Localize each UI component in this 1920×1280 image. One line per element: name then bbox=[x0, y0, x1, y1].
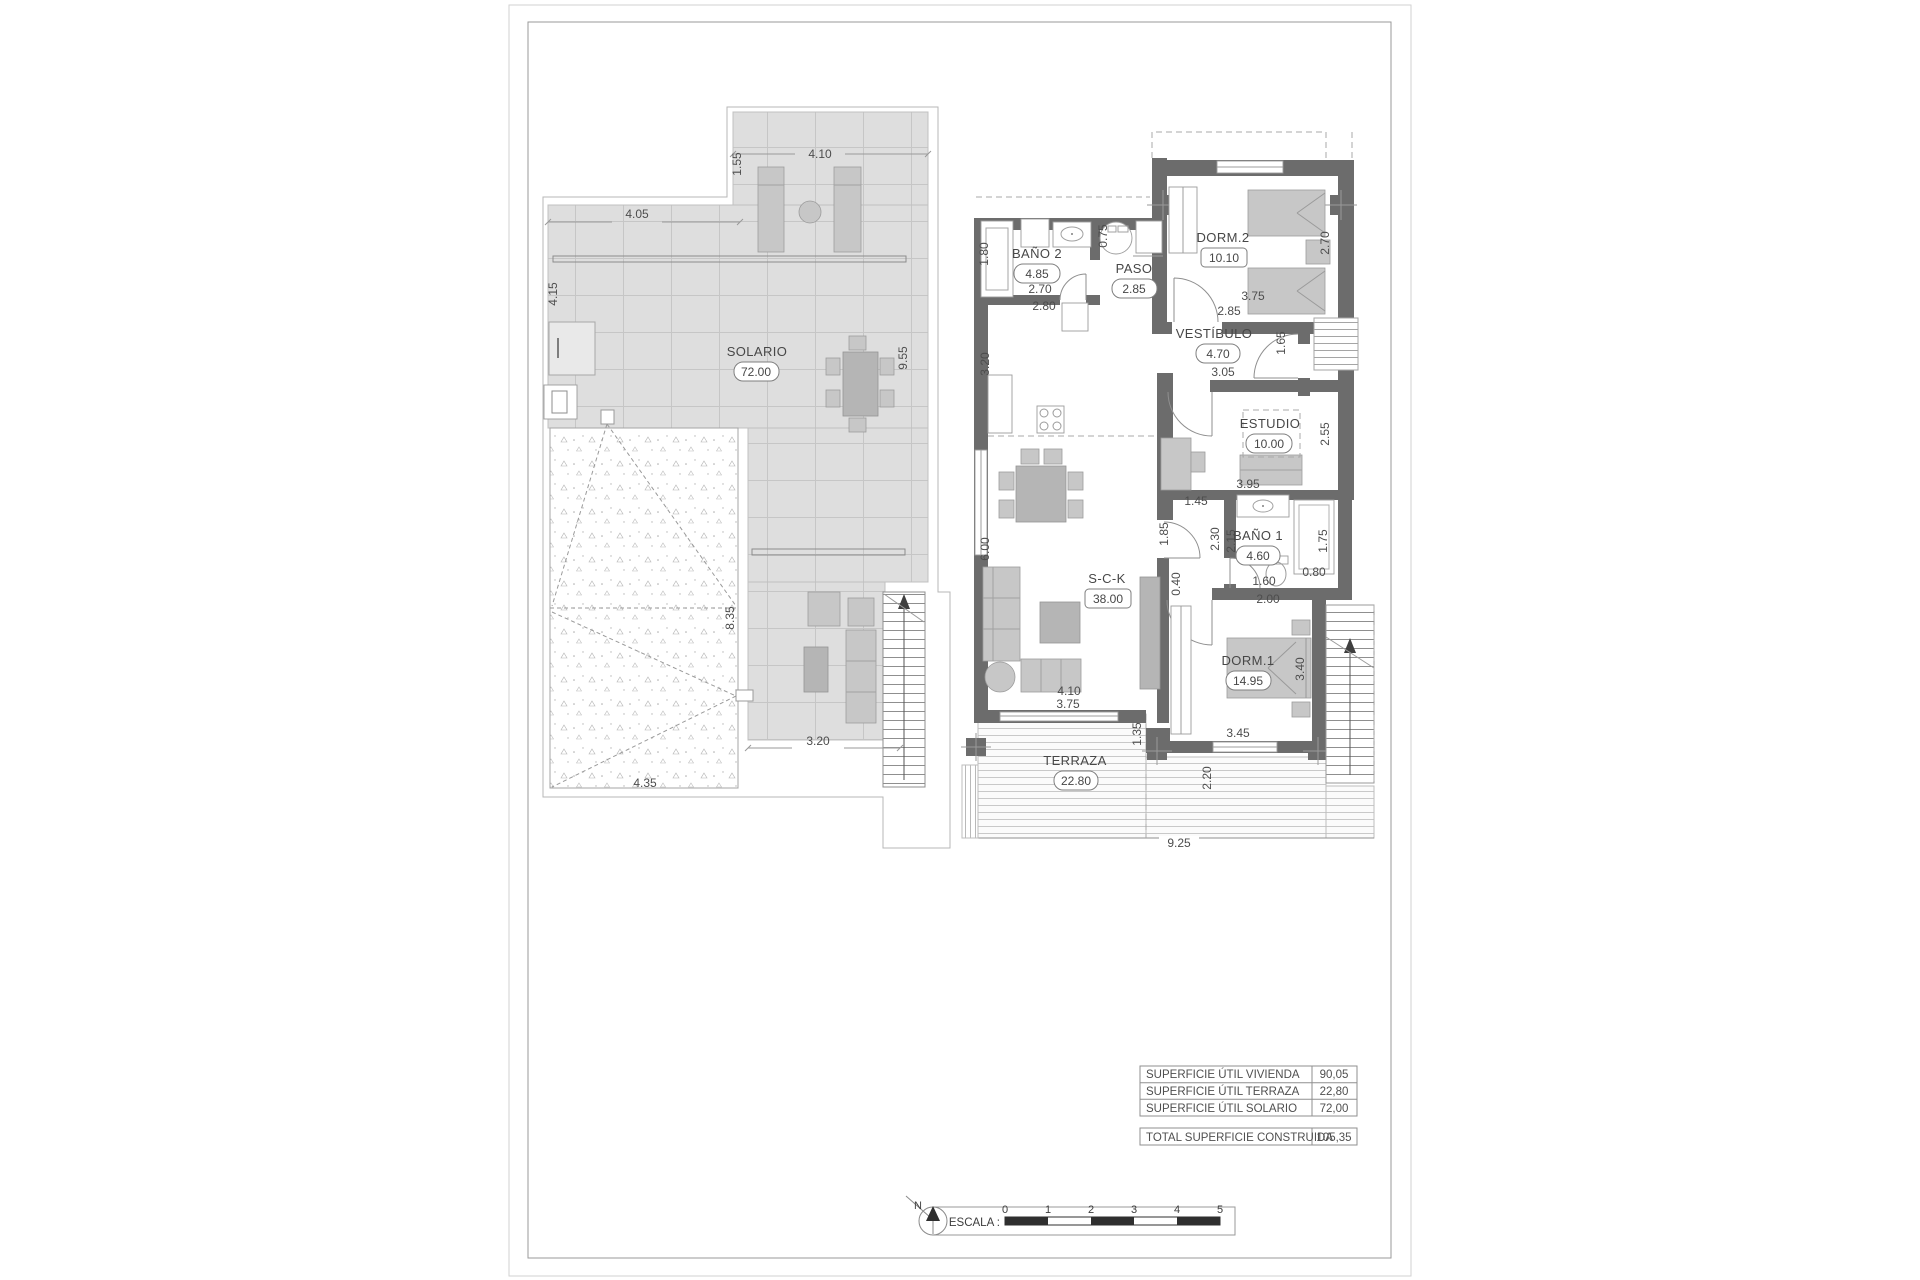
table-row-value: 22,80 bbox=[1320, 1086, 1349, 1098]
side-stairs bbox=[1326, 605, 1374, 783]
room-label-solario: SOLARIO bbox=[727, 344, 788, 359]
dim-terraza-left-w: 3.75 bbox=[1056, 697, 1080, 711]
area-paso: 2.85 bbox=[1122, 282, 1146, 296]
entry-stairs bbox=[1314, 318, 1358, 370]
area-vestibulo: 4.70 bbox=[1206, 347, 1230, 361]
dim-solario-top-height: 1.55 bbox=[730, 152, 744, 176]
chimney bbox=[544, 385, 577, 419]
dim-kitchen-height: 3.20 bbox=[978, 352, 992, 376]
dim-solario-top: 4.10 bbox=[808, 147, 832, 161]
dim-bano1-w1: 1.60 bbox=[1252, 574, 1276, 588]
dim-bano1-height: 1.75 bbox=[1316, 529, 1330, 553]
dim-dorm2-right: 2.70 bbox=[1318, 231, 1332, 255]
room-label-bano1: BAÑO 1 bbox=[1233, 528, 1283, 543]
scale-tick: 0 bbox=[1002, 1204, 1008, 1216]
area-bano1: 4.60 bbox=[1246, 549, 1270, 563]
room-label-paso: PASO bbox=[1116, 261, 1153, 276]
room-label-vestibulo: VESTÍBULO bbox=[1176, 326, 1253, 341]
solario-stairs bbox=[883, 592, 925, 787]
table-row-label: SUPERFICIE ÚTIL TERRAZA bbox=[1146, 1085, 1300, 1098]
dim-terraza-step: 1.35 bbox=[1130, 722, 1144, 746]
dim-solario-upper-width: 4.05 bbox=[625, 207, 649, 221]
stove bbox=[1037, 406, 1064, 433]
dorm1-furniture bbox=[1171, 606, 1311, 734]
dim-solario-left-height: 4.15 bbox=[546, 282, 560, 306]
north-label: N bbox=[914, 1200, 922, 1212]
main-floor-plan: 1.80 2.70 2.80 3.20 0.75 3.75 2.85 2.70 … bbox=[961, 132, 1374, 850]
skylight bbox=[549, 322, 595, 375]
dim-dorm2-bottom2: 2.85 bbox=[1217, 304, 1241, 318]
area-sck: 38.00 bbox=[1093, 592, 1123, 606]
dim-sck-width: 4.10 bbox=[1057, 684, 1081, 698]
dim-solario-right-height: 9.55 bbox=[896, 346, 910, 370]
area-bano2: 4.85 bbox=[1025, 267, 1049, 281]
area-estudio: 10.00 bbox=[1254, 437, 1284, 451]
dim-dorm2-bottom1: 3.75 bbox=[1241, 289, 1265, 303]
dim-hall-len1: 2.30 bbox=[1208, 527, 1222, 551]
area-value-solario: 72.00 bbox=[741, 365, 771, 379]
dim-sck-height: 6.00 bbox=[978, 537, 992, 561]
dim-bano2-w2: 2.80 bbox=[1032, 299, 1056, 313]
scale-tick: 1 bbox=[1045, 1204, 1051, 1216]
pitched-roof bbox=[550, 410, 753, 788]
table-row-label: SUPERFICIE ÚTIL VIVIENDA bbox=[1146, 1068, 1300, 1081]
sheet-canvas: 4.10 1.55 4.05 4.15 9.55 8.35 4.35 3.20 … bbox=[0, 0, 1920, 1280]
scale-label: ESCALA : bbox=[949, 1217, 1000, 1229]
room-label-bano2: BAÑO 2 bbox=[1012, 246, 1062, 261]
dim-terraza-width: 9.25 bbox=[1167, 836, 1191, 850]
dim-paso-niche: 0.75 bbox=[1096, 224, 1110, 248]
dim-dorm1-width: 3.45 bbox=[1226, 726, 1250, 740]
scale-tick: 3 bbox=[1131, 1204, 1137, 1216]
area-terraza: 22.80 bbox=[1061, 774, 1091, 788]
table-total-label: TOTAL SUPERFICIE CONSTRUIDA bbox=[1146, 1132, 1333, 1144]
area-dorm1: 14.95 bbox=[1233, 674, 1263, 688]
dim-bano1-w2: 2.00 bbox=[1256, 592, 1280, 606]
room-label-dorm1: DORM.1 bbox=[1222, 653, 1275, 668]
area-dorm2: 10.10 bbox=[1209, 251, 1239, 265]
scale-tick: 2 bbox=[1088, 1204, 1094, 1216]
dim-vest-door: 1.65 bbox=[1274, 331, 1288, 355]
scale-bar bbox=[1005, 1217, 1220, 1225]
side-table bbox=[799, 201, 821, 223]
terraza-side-steps bbox=[962, 765, 978, 838]
room-label-terraza: TERRAZA bbox=[1043, 753, 1106, 768]
dim-dorm1-height: 3.40 bbox=[1293, 657, 1307, 681]
dim-estudio-width: 3.95 bbox=[1236, 477, 1260, 491]
dim-shower-width: 0.80 bbox=[1302, 565, 1326, 579]
table-total-value: 105,35 bbox=[1316, 1132, 1351, 1144]
room-label-dorm2: DORM.2 bbox=[1197, 230, 1250, 245]
room-label-sck: S-C-K bbox=[1088, 571, 1125, 586]
dim-vest-width: 3.05 bbox=[1211, 365, 1235, 379]
dim-hall-width: 1.45 bbox=[1184, 494, 1208, 508]
dim-bano2-height: 1.80 bbox=[977, 242, 991, 266]
living-dining-furniture bbox=[983, 449, 1160, 692]
dim-wall-step: 0.40 bbox=[1169, 572, 1183, 596]
north-arrow: N bbox=[906, 1196, 947, 1235]
scale-tick: 4 bbox=[1174, 1204, 1180, 1216]
dim-terraza-right-h: 2.20 bbox=[1200, 766, 1214, 790]
dim-sck-door: 1.85 bbox=[1157, 522, 1171, 546]
kitchen bbox=[988, 303, 1157, 436]
floor-plan-drawing: 4.10 1.55 4.05 4.15 9.55 8.35 4.35 3.20 … bbox=[0, 0, 1920, 1280]
solario-plan: 4.10 1.55 4.05 4.15 9.55 8.35 4.35 3.20 … bbox=[543, 107, 950, 848]
dim-roof-width: 4.35 bbox=[633, 776, 657, 790]
areas-table: SUPERFICIE ÚTIL VIVIENDA 90,05 SUPERFICI… bbox=[1140, 1066, 1357, 1145]
room-label-estudio: ESTUDIO bbox=[1240, 416, 1301, 431]
table-row-value: 72,00 bbox=[1320, 1103, 1349, 1115]
scale-bar-block: N ESCALA : 0 1 2 3 4 5 bbox=[906, 1196, 1235, 1235]
table-row-value: 90,05 bbox=[1320, 1069, 1349, 1081]
dim-solario-bottom-width: 3.20 bbox=[806, 734, 830, 748]
dim-bano2-w1: 2.70 bbox=[1028, 282, 1052, 296]
dim-estudio-right: 2.55 bbox=[1318, 422, 1332, 446]
dim-roof-height: 8.35 bbox=[723, 606, 737, 630]
scale-tick: 5 bbox=[1217, 1204, 1223, 1216]
table-row-label: SUPERFICIE ÚTIL SOLARIO bbox=[1146, 1102, 1297, 1115]
